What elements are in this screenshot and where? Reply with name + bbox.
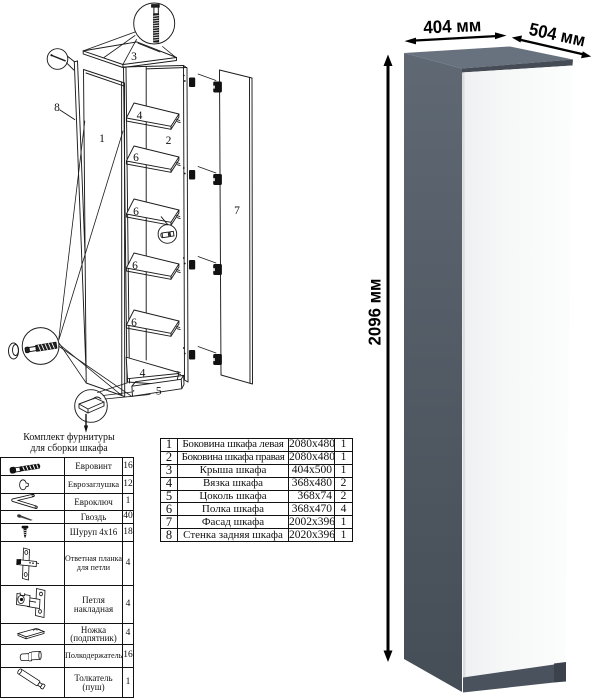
svg-text:1: 1 <box>99 133 105 145</box>
svg-text:8: 8 <box>54 102 60 114</box>
svg-text:6: 6 <box>132 260 138 272</box>
svg-text:7: 7 <box>234 205 240 217</box>
svg-text:6: 6 <box>131 317 137 329</box>
svg-text:404 мм: 404 мм <box>423 15 482 38</box>
svg-text:6: 6 <box>133 206 139 218</box>
svg-text:2: 2 <box>166 135 172 147</box>
svg-text:4: 4 <box>140 368 146 380</box>
svg-text:4: 4 <box>137 110 143 122</box>
svg-text:3: 3 <box>131 51 137 63</box>
svg-text:6: 6 <box>133 152 139 164</box>
svg-text:2096 мм: 2096 мм <box>365 279 385 346</box>
svg-text:5: 5 <box>156 385 162 397</box>
svg-text:504 мм: 504 мм <box>527 19 587 50</box>
